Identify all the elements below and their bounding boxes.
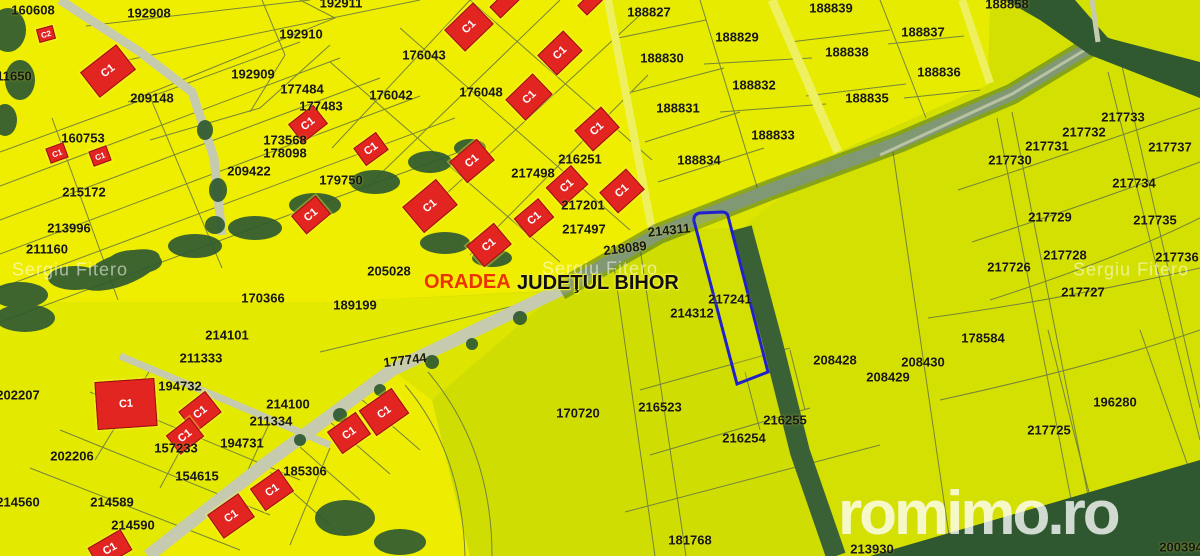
county-label: JUDEŢUL BIHOR (517, 273, 679, 293)
photographer-watermark: Sergiu Fitero (12, 260, 128, 281)
city-label: ORADEA (424, 272, 511, 292)
photographer-watermark: Sergiu Fitero (1073, 260, 1189, 281)
cadastral-map-canvas[interactable]: C1C1C1C1C1C1C1C1C1C1C1C1C1C1C1C1C1C1C1C1… (0, 0, 1200, 556)
brand-logo: romimo.ro (838, 483, 1118, 545)
